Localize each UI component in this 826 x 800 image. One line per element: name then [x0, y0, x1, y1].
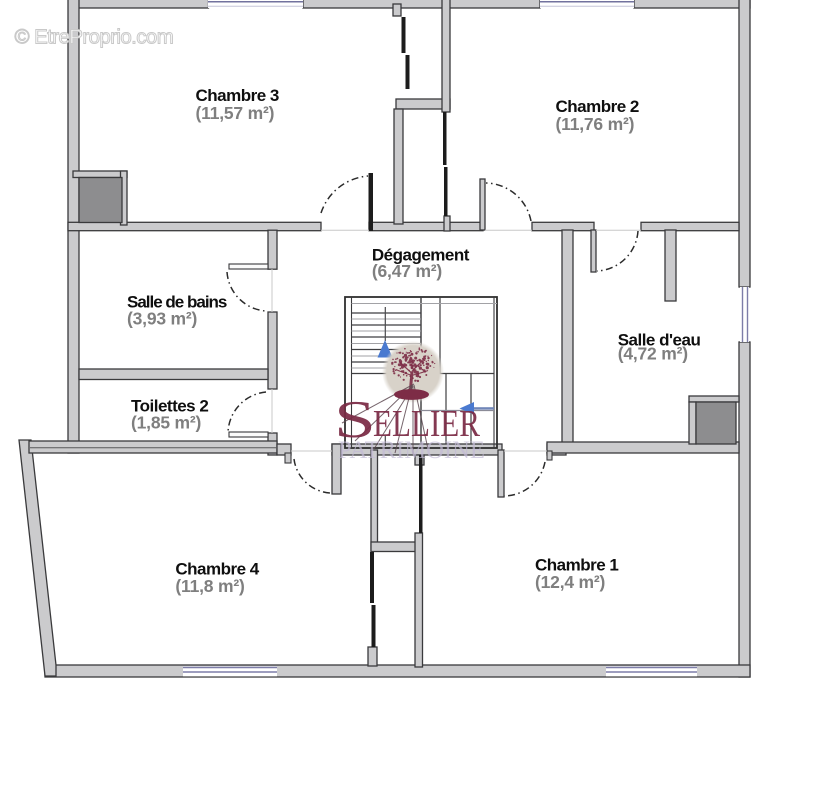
svg-text:PATRIMOINE: PATRIMOINE [338, 437, 485, 464]
svg-text:(11,76 m²): (11,76 m²) [556, 114, 635, 134]
svg-text:(6,47 m²): (6,47 m²) [372, 261, 442, 281]
svg-text:(3,93 m²): (3,93 m²) [127, 309, 197, 329]
svg-text:(4,72 m²): (4,72 m²) [618, 344, 688, 364]
svg-text:(11,57 m²): (11,57 m²) [196, 103, 275, 123]
svg-text:(12,4 m²): (12,4 m²) [535, 572, 605, 592]
svg-text:(11,8 m²): (11,8 m²) [175, 576, 244, 596]
svg-text:(1,85 m²): (1,85 m²) [131, 413, 201, 433]
svg-text:© EtreProprio.com: © EtreProprio.com [15, 26, 174, 49]
